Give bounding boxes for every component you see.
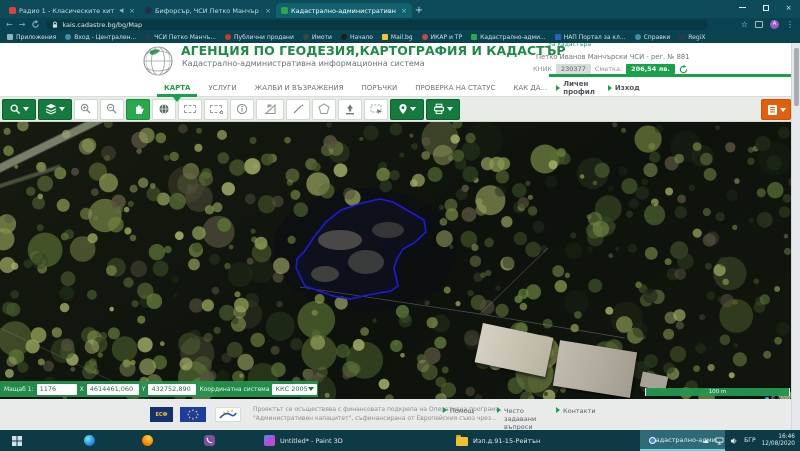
knik-value: 230377 [556,64,591,74]
measure-area-button[interactable] [256,99,284,120]
windows-taskbar: Untitled* - Paint 3D Изп.д.91-15-Рейтън … [0,430,800,451]
map-status-bar: Мащаб 1: X Y Координатна система ККС 200… [0,381,318,397]
tab-bforce[interactable]: Бифорсър, ЧСИ Петко Манчър × [140,3,276,18]
user-account-row: КНИК 230377 Сметка: 206,54 лв. [533,64,688,74]
profile-link[interactable]: Личен профил [556,80,595,96]
edge-taskbar-icon[interactable] [78,430,100,451]
map-toolbar [0,97,800,122]
site-icon [422,34,428,40]
nav-tab-uslugi[interactable]: УСЛУГИ [199,84,245,92]
selected-parcel-polygon[interactable] [296,199,426,299]
print-tool-button[interactable] [426,99,460,120]
firefox-taskbar-icon[interactable] [136,430,158,451]
bookmark-item[interactable]: ИКАР и ТР [422,34,462,41]
folder-icon [456,437,468,446]
document-lines-icon [767,104,778,116]
network-icon[interactable] [715,437,724,445]
bookmarks-bar: Приложения Вход - Централен... ЧСИ Петко… [0,31,800,43]
bookmark-item[interactable]: НАП Портал за кл... [555,34,626,41]
page-title: АГЕНЦИЯ ПО ГЕОДЕЗИЯ,КАРТОГРАФИЯ И КАДАСТ… [181,43,566,58]
language-indicator[interactable]: БГР [744,437,755,444]
refresh-icon[interactable] [679,65,688,74]
tab-strip: Радио 1 - Класическите хит × Бифорсър, Ч… [0,0,800,18]
tab-close-icon[interactable]: × [129,7,135,15]
layers-tool-button[interactable] [38,99,72,120]
bookmark-item[interactable]: Кадастрално-адми... [471,34,546,41]
nav-tab-karta[interactable]: КАРТА [155,84,199,92]
globe-icon [635,34,641,40]
layers-icon [45,103,57,115]
tab-radio[interactable]: Радио 1 - Класическите хит × [4,3,140,18]
tab-close-icon[interactable]: × [401,7,407,15]
site-icon [341,34,347,40]
bookmark-star-icon[interactable]: ☆ [741,21,748,29]
site-icon [555,34,561,40]
chevron-down-icon [447,107,453,111]
info-icon [236,103,248,115]
upload-icon [344,103,356,115]
extension-icon[interactable] [755,21,763,28]
crs-label: Координатна система [199,386,269,393]
tab-title: Радио 1 - Класическите хит [19,7,116,15]
select-region-button[interactable] [364,99,388,120]
nav-tab-kakda[interactable]: КАК ДА... [504,84,556,92]
page-scrollbar[interactable] [791,43,800,430]
pan-hand-icon [133,103,144,115]
folder-taskbar-app[interactable]: Изп.д.91-15-Рейтън [450,430,546,451]
contacts-link[interactable]: Контакти [556,407,596,415]
arrow-icon [608,85,612,91]
main-navigation: КАРТА УСЛУГИ ЖАЛБИ И ВЪЗРАЖЕНИЯ ПОРЪЧКИ … [0,80,800,97]
faq-link[interactable]: Често задавани въпроси [497,407,548,430]
account-balance: 206,54 лв. [626,64,675,74]
lock-icon [52,21,58,29]
tab-close-icon[interactable]: × [265,7,271,15]
zoom-out-icon [106,103,118,115]
x-label: X [80,386,84,393]
nav-tab-zhalbi[interactable]: ЖАЛБИ И ВЪЗРАЖЕНИЯ [246,84,353,92]
polygon-icon [318,103,330,115]
draw-polygon-button[interactable] [312,99,336,120]
cadastral-boundary-line [480,248,548,314]
map-scale-bar: 100 m [645,388,790,396]
help-link[interactable]: Помощ [443,407,474,415]
paint3d-icon [264,435,275,446]
tab-title: Кадастрално-административн [291,7,398,15]
set-square-flag-icon [264,103,277,115]
minimize-button[interactable] [731,0,754,15]
maximize-button[interactable] [754,0,777,15]
clock[interactable]: 16:46 12/08/2020 [762,434,795,448]
search-icon [10,104,21,115]
nav-tab-proverka[interactable]: ПРОВЕРКА НА СТАТУС [406,84,504,92]
user-links: Личен профил Изход [556,80,640,96]
nav-tab-porachki[interactable]: ПОРЪЧКИ [352,84,406,92]
pencil-line-icon [292,103,304,115]
arrow-icon [556,85,560,91]
site-icon [225,34,231,40]
crs-select[interactable]: ККС 2005 [272,384,316,395]
zoom-in-icon [80,103,92,115]
select-region-icon [370,104,383,115]
tab-favicon [281,7,288,14]
forward-icon[interactable]: → [19,21,26,29]
site-icon [471,34,477,40]
close-button[interactable]: × [777,0,800,15]
select-extent-button[interactable] [204,99,228,120]
bookmark-item[interactable]: ЧСИ Петко Манчъ... [145,34,216,41]
bookmark-item[interactable]: RegiX [679,34,705,41]
scale-label: Мащаб 1: [4,386,34,393]
browser-menu-icon[interactable]: ⋮ [786,21,794,29]
browser-window: Радио 1 - Класическите хит × Бифорсър, Ч… [0,0,800,451]
logout-link[interactable]: Изход [608,84,640,92]
page-footer: ЕСФ Проектът се осъществява с финансоват… [0,399,800,430]
tab-kais-active[interactable]: Кадастрално-административн × [276,3,412,18]
chevron-down-icon [780,108,786,112]
reports-menu-button[interactable] [761,99,791,120]
paint3d-taskbar-app[interactable]: Untitled* - Paint 3D [258,430,349,451]
zoom-in-button[interactable] [74,99,98,120]
chevron-down-icon [308,387,314,391]
measure-distance-button[interactable] [286,99,310,120]
active-tab-triangle [173,97,181,102]
select-extent-icon [210,105,222,113]
window-controls: × [731,0,800,15]
bookmark-item[interactable]: Справки [635,34,671,41]
map-canvas[interactable]: Мащаб 1: X Y Координатна система ККС 200… [0,122,800,399]
tray-expand-icon[interactable] [703,439,709,443]
bookmark-item[interactable]: Начало [341,34,373,41]
user-name: Петко Иванов Манчърски ЧСИ - рег. № 881 [536,53,690,61]
arrow-icon [443,407,447,413]
site-icon [145,34,151,40]
bookmark-item[interactable]: Mail.bg [382,34,413,41]
arrow-icon [556,407,560,413]
opac-logo [215,407,241,422]
page-subtitle: Кадастрално-административна информационн… [182,59,425,68]
tab-audio-icon [119,7,126,14]
chevron-down-icon [59,107,65,111]
vector-overlay [0,122,800,399]
account-label: Сметка: [595,65,622,73]
volume-icon[interactable] [730,437,738,445]
pan-tool-button[interactable] [126,99,150,120]
site-icon [679,34,685,40]
tab-favicon [9,7,16,14]
back-icon[interactable]: ← [6,21,13,29]
zoom-out-button[interactable] [100,99,124,120]
bookmark-apps[interactable]: Приложения [7,34,56,41]
chevron-down-icon [23,107,29,111]
y-coordinate-input[interactable] [148,384,196,395]
url-field[interactable]: kais.cadastre.bg/bg/Map [46,20,708,30]
reload-icon[interactable] [31,20,40,29]
scale-input[interactable] [37,384,77,395]
address-bar-actions: ☆ А ⋮ [741,20,794,29]
kais-page: АГЕНЦИЯ ПО ГЕОДЕЗИЯ,КАРТОГРАФИЯ И КАДАСТ… [0,43,800,430]
bookmark-item[interactable]: Вход - Централен... [65,34,136,41]
x-coordinate-input[interactable] [87,384,139,395]
knik-label: КНИК [533,65,552,73]
site-icon [382,34,388,40]
identify-button[interactable] [230,99,254,120]
profile-avatar[interactable]: А [770,20,779,29]
tab-favicon [145,7,152,14]
import-button[interactable] [338,99,362,120]
url-text: kais.cadastre.bg/bg/Map [62,21,142,29]
system-tray: БГР 16:46 12/08/2020 [703,430,795,451]
tab-title: Бифорсър, ЧСИ Петко Манчър [155,7,262,15]
locate-tool-button[interactable] [390,99,424,120]
header-green-rule [549,74,796,77]
new-tab-button[interactable]: + [412,4,426,18]
search-tool-button[interactable] [2,99,36,120]
bookmark-item[interactable]: Публични продани [225,34,294,41]
location-pin-icon [398,103,408,115]
agency-globe-logo [141,44,175,78]
esf-logo: ЕСФ [150,407,173,422]
site-icon [303,34,309,40]
select-rectangle-button[interactable] [178,99,202,120]
eu-flag-logo [180,407,206,422]
scrollbar-thumb[interactable] [794,48,799,106]
page-header: АГЕНЦИЯ ПО ГЕОДЕЗИЯ,КАРТОГРАФИЯ И КАДАСТ… [0,43,800,80]
address-bar: ← → kais.cadastre.bg/bg/Map ☆ А ⋮ [0,18,800,31]
header-top-link[interactable]: За кадастъра [548,43,591,48]
globe-icon [65,34,71,40]
select-rectangle-icon [184,105,196,113]
bookmark-item[interactable]: Имоти [303,34,332,41]
arrow-icon [497,407,501,413]
globe-icon [158,103,170,115]
apps-grid-icon [7,34,13,40]
chevron-down-icon [410,107,416,111]
y-label: Y [142,386,146,393]
start-button[interactable] [6,430,28,451]
windows-logo-icon [12,436,22,446]
printer-icon [433,103,445,115]
viber-taskbar-icon[interactable] [198,430,220,451]
